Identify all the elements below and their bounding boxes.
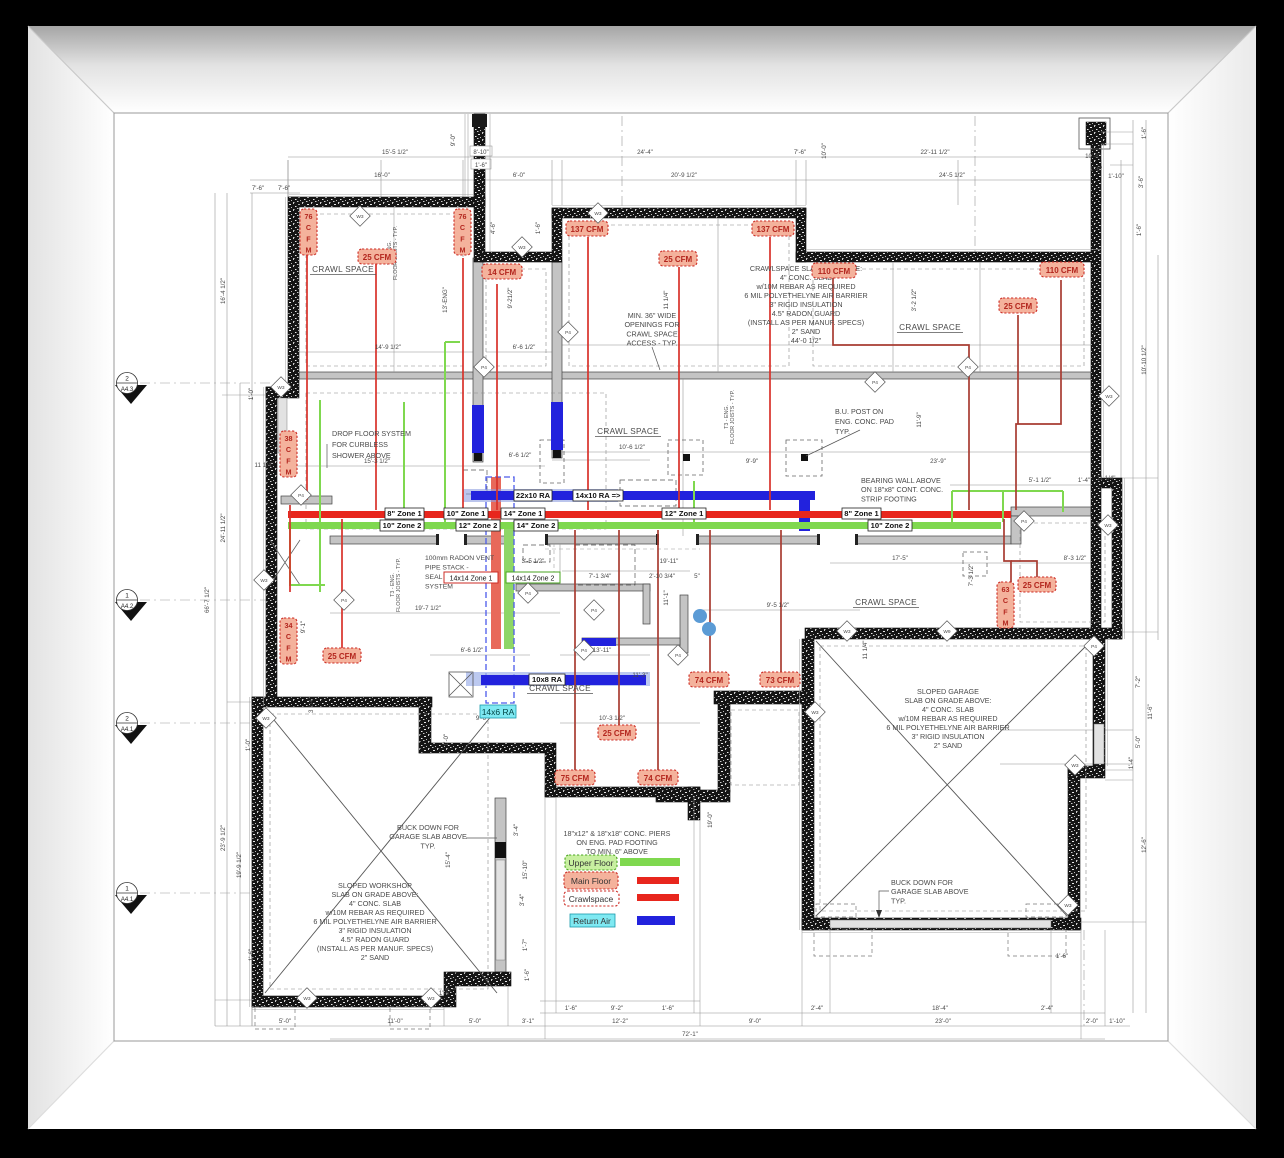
svg-text:P4: P4 (1091, 644, 1097, 650)
svg-text:10" Zone 1: 10" Zone 1 (447, 509, 486, 518)
svg-text:3'-6": 3'-6" (1138, 176, 1145, 188)
svg-text:14x10 RA =>: 14x10 RA => (576, 491, 621, 500)
svg-text:2'-10 3/4": 2'-10 3/4" (649, 573, 675, 580)
svg-text:6'-6 1/2": 6'-6 1/2" (513, 344, 536, 351)
svg-text:SLOPED WORKSHOP: SLOPED WORKSHOP (338, 881, 412, 890)
svg-text:DROP FLOOR SYSTEM: DROP FLOOR SYSTEM (332, 429, 411, 438)
svg-text:6'-6 1/2": 6'-6 1/2" (509, 452, 532, 459)
svg-text:3'-4": 3'-4" (519, 894, 526, 906)
svg-text:BUCK DOWN FOR: BUCK DOWN FOR (397, 823, 459, 832)
svg-text:M: M (286, 655, 292, 664)
svg-text:9'-21/2": 9'-21/2" (507, 288, 514, 309)
svg-text:W3: W3 (1104, 523, 1112, 529)
svg-text:P4: P4 (591, 608, 597, 614)
svg-text:8'-10": 8'-10" (473, 150, 488, 156)
svg-text:2'-0": 2'-0" (1086, 1018, 1098, 1025)
svg-text:12'-2": 12'-2" (612, 1018, 628, 1025)
svg-text:CRAWL SPACE: CRAWL SPACE (626, 329, 677, 338)
svg-text:ON ENG. PAD FOOTING: ON ENG. PAD FOOTING (576, 838, 658, 847)
svg-text:1'-6": 1'-6" (565, 1005, 577, 1012)
svg-text:14 CFM: 14 CFM (488, 268, 517, 277)
svg-text:11'-3": 11'-3" (632, 672, 647, 679)
svg-text:ACCESS - TYP.: ACCESS - TYP. (627, 339, 678, 348)
svg-text:w/10M REBAR AS REQUIRED: w/10M REBAR AS REQUIRED (897, 714, 997, 723)
svg-text:1'-7": 1'-7" (522, 939, 529, 951)
svg-text:6 MIL POLYETHELYNE AIR BARRIER: 6 MIL POLYETHELYNE AIR BARRIER (744, 291, 867, 300)
svg-text:24'-4": 24'-4" (637, 149, 653, 156)
svg-text:15'-5 1/2": 15'-5 1/2" (382, 149, 408, 156)
svg-text:8" Zone 1: 8" Zone 1 (844, 509, 879, 518)
svg-text:1'-6": 1'-6" (535, 222, 542, 234)
svg-text:10x8 RA: 10x8 RA (532, 675, 562, 684)
svg-text:1'-0": 1'-0" (443, 734, 450, 746)
svg-text:11'-6": 11'-6" (1147, 704, 1154, 719)
svg-text:6'-0": 6'-0" (513, 172, 525, 179)
svg-text:19'-11": 19'-11" (660, 558, 679, 565)
svg-text:FOR CURBLESS: FOR CURBLESS (332, 440, 388, 449)
svg-text:2" SAND: 2" SAND (361, 953, 390, 962)
svg-text:2'-4": 2'-4" (1041, 1005, 1053, 1012)
svg-text:P4: P4 (872, 380, 878, 386)
svg-text:8'-3 1/2": 8'-3 1/2" (1064, 555, 1087, 562)
svg-text:F: F (286, 456, 291, 465)
svg-text:10'-8": 10'-8" (1085, 153, 1101, 160)
svg-text:7'-6": 7'-6" (278, 185, 290, 192)
svg-text:14x14 Zone 2: 14x14 Zone 2 (512, 576, 555, 583)
svg-text:5'-0": 5'-0" (279, 1018, 291, 1025)
svg-text:TYP.: TYP. (891, 896, 906, 905)
svg-text:GARAGE SLAB ABOVE: GARAGE SLAB ABOVE (891, 887, 969, 896)
svg-text:CRAWL SPACE: CRAWL SPACE (855, 598, 917, 607)
svg-text:10'-0": 10'-0" (821, 143, 828, 159)
svg-text:1'-6": 1'-6" (524, 969, 531, 981)
svg-text:1'-0": 1'-0" (248, 388, 255, 400)
svg-text:OPENINGS FOR: OPENINGS FOR (624, 320, 679, 329)
svg-text:16'-0": 16'-0" (374, 172, 390, 179)
svg-text:15'-3 1/2": 15'-3 1/2" (364, 458, 390, 465)
svg-text:9'-0": 9'-0" (450, 134, 457, 146)
svg-text:SLOPED GARAGE: SLOPED GARAGE (917, 687, 979, 696)
svg-text:STRIP FOOTING: STRIP FOOTING (861, 494, 917, 503)
svg-text:Return Air: Return Air (573, 916, 611, 926)
svg-text:PIPE STACK -: PIPE STACK - (425, 565, 469, 572)
svg-text:(INSTALL AS PER MANUF. SPECS): (INSTALL AS PER MANUF. SPECS) (748, 318, 864, 327)
svg-text:24'-5 1/2": 24'-5 1/2" (939, 172, 965, 179)
svg-text:38: 38 (285, 434, 293, 443)
svg-text:12'-6": 12'-6" (1141, 837, 1148, 853)
svg-text:9'-9": 9'-9" (746, 458, 758, 465)
svg-text:1'-6": 1'-6" (1141, 127, 1148, 139)
svg-text:10" Zone 2: 10" Zone 2 (871, 521, 910, 530)
svg-text:W3: W3 (1064, 903, 1072, 909)
svg-text:A4.1: A4.1 (121, 727, 134, 733)
svg-text:15'-4": 15'-4" (445, 852, 452, 868)
svg-text:10'-10 1/2": 10'-10 1/2" (1141, 345, 1148, 375)
svg-text:W3: W3 (356, 214, 364, 220)
svg-text:W3: W3 (260, 578, 268, 584)
svg-text:W9: W9 (943, 629, 951, 635)
svg-text:4'-6": 4'-6" (490, 222, 497, 234)
svg-text:14x6 RA: 14x6 RA (482, 707, 515, 717)
svg-text:6 MIL POLYETHELYNE AIR BARRIER: 6 MIL POLYETHELYNE AIR BARRIER (313, 917, 436, 926)
svg-text:18"x12" & 18"x18" CONC. PIERS: 18"x12" & 18"x18" CONC. PIERS (564, 829, 671, 838)
svg-text:34: 34 (285, 621, 293, 630)
svg-text:1'-4": 1'-4" (1128, 757, 1135, 769)
svg-text:P4: P4 (565, 330, 571, 336)
svg-text:3'-5 1/2": 3'-5 1/2" (522, 558, 545, 565)
svg-text:MIN. 36" WIDE: MIN. 36" WIDE (628, 311, 677, 320)
svg-text:14'-9 1/2": 14'-9 1/2" (375, 344, 401, 351)
svg-text:P4: P4 (341, 598, 347, 604)
svg-text:44'-0 1/2": 44'-0 1/2" (791, 336, 822, 345)
svg-text:F: F (460, 234, 465, 243)
svg-text:w/10M REBAR AS REQUIRED: w/10M REBAR AS REQUIRED (324, 908, 424, 917)
svg-text:76: 76 (305, 212, 313, 221)
svg-text:Main Floor: Main Floor (571, 876, 611, 886)
svg-text:A4.2: A4.2 (121, 604, 134, 610)
svg-text:W3: W3 (1071, 763, 1079, 769)
svg-text:9'-2": 9'-2" (611, 1005, 623, 1012)
svg-text:13'-ENG": 13'-ENG" (442, 287, 449, 313)
svg-text:14" Zone 1: 14" Zone 1 (504, 509, 543, 518)
svg-text:CRAWL SPACE: CRAWL SPACE (597, 427, 659, 436)
svg-text:11'-0": 11'-0" (387, 1018, 402, 1025)
svg-text:7'-6": 7'-6" (252, 185, 264, 192)
svg-text:18'-4": 18'-4" (932, 1005, 948, 1012)
svg-text:1'-6": 1'-6" (475, 163, 487, 169)
svg-text:BUCK DOWN FOR: BUCK DOWN FOR (891, 878, 953, 887)
svg-text:11 1/4": 11 1/4" (663, 291, 670, 310)
svg-text:1'-0": 1'-0" (245, 739, 252, 751)
svg-text:110 CFM: 110 CFM (1046, 266, 1079, 275)
svg-text:12" Zone 1: 12" Zone 1 (665, 509, 704, 518)
svg-text:19'-9 1/2": 19'-9 1/2" (236, 852, 243, 878)
svg-text:66'-7 1/2": 66'-7 1/2" (204, 587, 211, 613)
svg-text:1'-6": 1'-6" (1090, 166, 1102, 173)
svg-text:100mm RADON VENT: 100mm RADON VENT (425, 555, 494, 562)
svg-text:20'-9 1/2": 20'-9 1/2" (671, 172, 697, 179)
svg-text:24'-11 1/2": 24'-11 1/2" (220, 513, 227, 542)
svg-text:9'-0": 9'-0" (749, 1018, 761, 1025)
svg-text:3'-4": 3'-4" (513, 824, 520, 836)
svg-text:P4: P4 (581, 648, 587, 654)
svg-text:2" SAND: 2" SAND (934, 741, 963, 750)
svg-text:15'-10": 15'-10" (522, 860, 529, 879)
svg-text:P4: P4 (1021, 519, 1027, 525)
svg-text:74 CFM: 74 CFM (644, 774, 673, 783)
svg-text:TYP.: TYP. (420, 841, 435, 850)
svg-text:CRAWL SPACE: CRAWL SPACE (899, 323, 961, 332)
svg-text:137 CFM: 137 CFM (571, 225, 604, 234)
svg-text:2: 2 (125, 716, 129, 723)
svg-text:3'-1": 3'-1" (522, 1018, 534, 1025)
svg-text:BEARING WALL ABOVE: BEARING WALL ABOVE (861, 476, 941, 485)
svg-text:3" RIGID INSULATION: 3" RIGID INSULATION (911, 732, 984, 741)
svg-text:(INSTALL AS PER MANUF. SPECS): (INSTALL AS PER MANUF. SPECS) (317, 944, 433, 953)
svg-text:CRAWL SPACE: CRAWL SPACE (312, 265, 374, 274)
svg-text:W3: W3 (1105, 394, 1113, 400)
svg-text:5'-1 1/2": 5'-1 1/2" (1029, 477, 1052, 484)
svg-text:P4: P4 (481, 365, 487, 371)
svg-text:GARAGE SLAB ABOVE: GARAGE SLAB ABOVE (389, 832, 467, 841)
svg-text:7'-2": 7'-2" (1135, 676, 1142, 688)
svg-text:5": 5" (694, 573, 700, 580)
svg-text:1'-6": 1'-6" (1136, 224, 1143, 236)
svg-text:1'-6": 1'-6" (248, 949, 255, 961)
svg-text:1'-6": 1'-6" (662, 1005, 674, 1012)
svg-text:SLAB ON GRADE ABOVE:: SLAB ON GRADE ABOVE: (331, 890, 418, 899)
svg-text:12" Zone 2: 12" Zone 2 (459, 521, 498, 530)
svg-text:9'-5 1/2": 9'-5 1/2" (767, 602, 790, 609)
svg-text:M: M (460, 246, 466, 255)
svg-text:5'-0": 5'-0" (1135, 736, 1142, 748)
svg-text:A4.1: A4.1 (121, 897, 134, 903)
svg-text:7'-1 3/4": 7'-1 3/4" (589, 573, 612, 580)
svg-text:C: C (306, 223, 311, 232)
svg-text:3'-2 1/2": 3'-2 1/2" (911, 289, 918, 312)
svg-text:B.U. POST ON: B.U. POST ON (835, 407, 883, 416)
svg-text:9'-1": 9'-1" (300, 621, 307, 633)
svg-text:14" Zone 2: 14" Zone 2 (517, 521, 556, 530)
svg-text:SLAB ON GRADE ABOVE:: SLAB ON GRADE ABOVE: (904, 696, 991, 705)
svg-text:W3: W3 (427, 996, 435, 1002)
svg-text:11'-1": 11'-1" (663, 590, 670, 605)
svg-text:1'-10": 1'-10" (1108, 173, 1124, 180)
svg-text:P4: P4 (525, 591, 531, 597)
svg-text:19'-7 1/2": 19'-7 1/2" (415, 605, 441, 612)
svg-text:W3: W3 (277, 385, 285, 391)
svg-text:C: C (286, 445, 291, 454)
svg-text:10'-3 1/2": 10'-3 1/2" (599, 715, 625, 722)
svg-text:110 CFM: 110 CFM (818, 267, 851, 276)
svg-text:25 CFM: 25 CFM (603, 729, 632, 738)
svg-text:1: 1 (125, 886, 129, 893)
svg-text:6 MIL POLYETHELYNE AIR BARRIER: 6 MIL POLYETHELYNE AIR BARRIER (886, 723, 1009, 732)
svg-text:1'-4": 1'-4" (1078, 477, 1090, 484)
svg-text:19'-0": 19'-0" (707, 812, 714, 828)
svg-text:10" Zone 2: 10" Zone 2 (383, 521, 422, 530)
svg-text:P4: P4 (298, 493, 304, 499)
svg-text:M: M (1003, 619, 1009, 628)
svg-text:25 CFM: 25 CFM (664, 255, 693, 264)
svg-text:25 CFM: 25 CFM (328, 652, 357, 661)
svg-text:1'-6": 1'-6" (1056, 953, 1068, 960)
svg-text:76: 76 (459, 212, 467, 221)
svg-text:W3: W3 (518, 245, 526, 251)
svg-text:11 1/4": 11 1/4" (862, 641, 869, 660)
svg-text:F: F (1003, 607, 1008, 616)
svg-text:6'-6 1/2": 6'-6 1/2" (461, 647, 484, 654)
svg-text:F: F (306, 234, 311, 243)
svg-text:63: 63 (1002, 585, 1010, 594)
svg-text:8" Zone 1: 8" Zone 1 (387, 509, 422, 518)
svg-text:Crawlspace: Crawlspace (569, 894, 614, 904)
svg-text:25 CFM: 25 CFM (363, 253, 392, 262)
svg-text:25 CFM: 25 CFM (1023, 581, 1052, 590)
svg-text:ON 18"x8" CONT. CONC.: ON 18"x8" CONT. CONC. (861, 485, 943, 494)
svg-text:C: C (286, 632, 291, 641)
svg-text:2: 2 (125, 376, 129, 383)
svg-text:72'-1": 72'-1" (682, 1031, 698, 1038)
svg-text:11 1/4": 11 1/4" (255, 462, 274, 469)
svg-text:11'-9": 11'-9" (916, 412, 923, 427)
svg-text:3" RIGID INSULATION: 3" RIGID INSULATION (769, 300, 842, 309)
svg-text:W3: W3 (594, 211, 602, 217)
svg-text:137 CFM: 137 CFM (757, 225, 790, 234)
svg-text:C: C (460, 223, 465, 232)
svg-text:A4.3: A4.3 (121, 387, 134, 393)
svg-text:M: M (286, 468, 292, 477)
svg-text:TYP.: TYP. (835, 427, 850, 436)
svg-text:3 1/4": 3 1/4" (308, 697, 315, 713)
svg-text:3" RIGID INSULATION: 3" RIGID INSULATION (338, 926, 411, 935)
svg-text:TO MIN. 6" ABOVE: TO MIN. 6" ABOVE (586, 847, 648, 856)
svg-text:1'-6": 1'-6" (439, 990, 451, 997)
svg-text:2'-4": 2'-4" (811, 1005, 823, 1012)
svg-text:17'-5": 17'-5" (892, 555, 908, 562)
svg-text:23'-0": 23'-0" (935, 1018, 951, 1025)
svg-text:13'-11": 13'-11" (593, 647, 612, 654)
svg-text:M: M (306, 246, 312, 255)
svg-text:SYSTEM: SYSTEM (425, 584, 453, 591)
svg-text:2" SAND: 2" SAND (792, 327, 821, 336)
svg-text:W3: W3 (811, 710, 819, 716)
svg-text:4.5" RADON GUARD: 4.5" RADON GUARD (341, 935, 409, 944)
svg-text:22x10 RA: 22x10 RA (516, 491, 551, 500)
svg-text:7'-3 1/2": 7'-3 1/2" (968, 564, 975, 587)
svg-text:P4: P4 (965, 365, 971, 371)
svg-text:7'-6": 7'-6" (794, 149, 806, 156)
svg-text:16'-4 1/2": 16'-4 1/2" (220, 278, 227, 304)
svg-text:75 CFM: 75 CFM (561, 774, 590, 783)
svg-text:4.5" RADON GUARD: 4.5" RADON GUARD (772, 309, 840, 318)
svg-text:P4: P4 (675, 653, 681, 659)
svg-text:5'-0": 5'-0" (469, 1018, 481, 1025)
svg-text:11 1/4": 11 1/4" (1097, 475, 1116, 482)
svg-text:W3: W3 (303, 996, 311, 1002)
svg-text:10'-6 1/2": 10'-6 1/2" (619, 444, 645, 451)
svg-text:4" CONC. SLAB: 4" CONC. SLAB (349, 899, 401, 908)
svg-text:w/10M REBAR AS REQUIRED: w/10M REBAR AS REQUIRED (755, 282, 855, 291)
svg-text:ENG. CONC. PAD: ENG. CONC. PAD (835, 417, 894, 426)
svg-text:73 CFM: 73 CFM (766, 676, 795, 685)
svg-text:74 CFM: 74 CFM (695, 676, 724, 685)
svg-text:F: F (286, 643, 291, 652)
svg-text:1'-10": 1'-10" (1109, 1018, 1125, 1025)
svg-text:C: C (1003, 596, 1008, 605)
svg-text:Upper Floor: Upper Floor (569, 858, 614, 868)
svg-text:22'-11 1/2": 22'-11 1/2" (920, 149, 949, 156)
svg-text:23'-9": 23'-9" (930, 458, 946, 465)
svg-text:4" CONC. SLAB: 4" CONC. SLAB (922, 705, 974, 714)
svg-text:W3: W3 (262, 716, 270, 722)
svg-text:23'-9 1/2": 23'-9 1/2" (220, 825, 227, 851)
svg-text:14x14 Zone 1: 14x14 Zone 1 (450, 576, 493, 583)
svg-text:W3: W3 (843, 629, 851, 635)
svg-text:1: 1 (125, 593, 129, 600)
svg-text:25 CFM: 25 CFM (1004, 302, 1033, 311)
